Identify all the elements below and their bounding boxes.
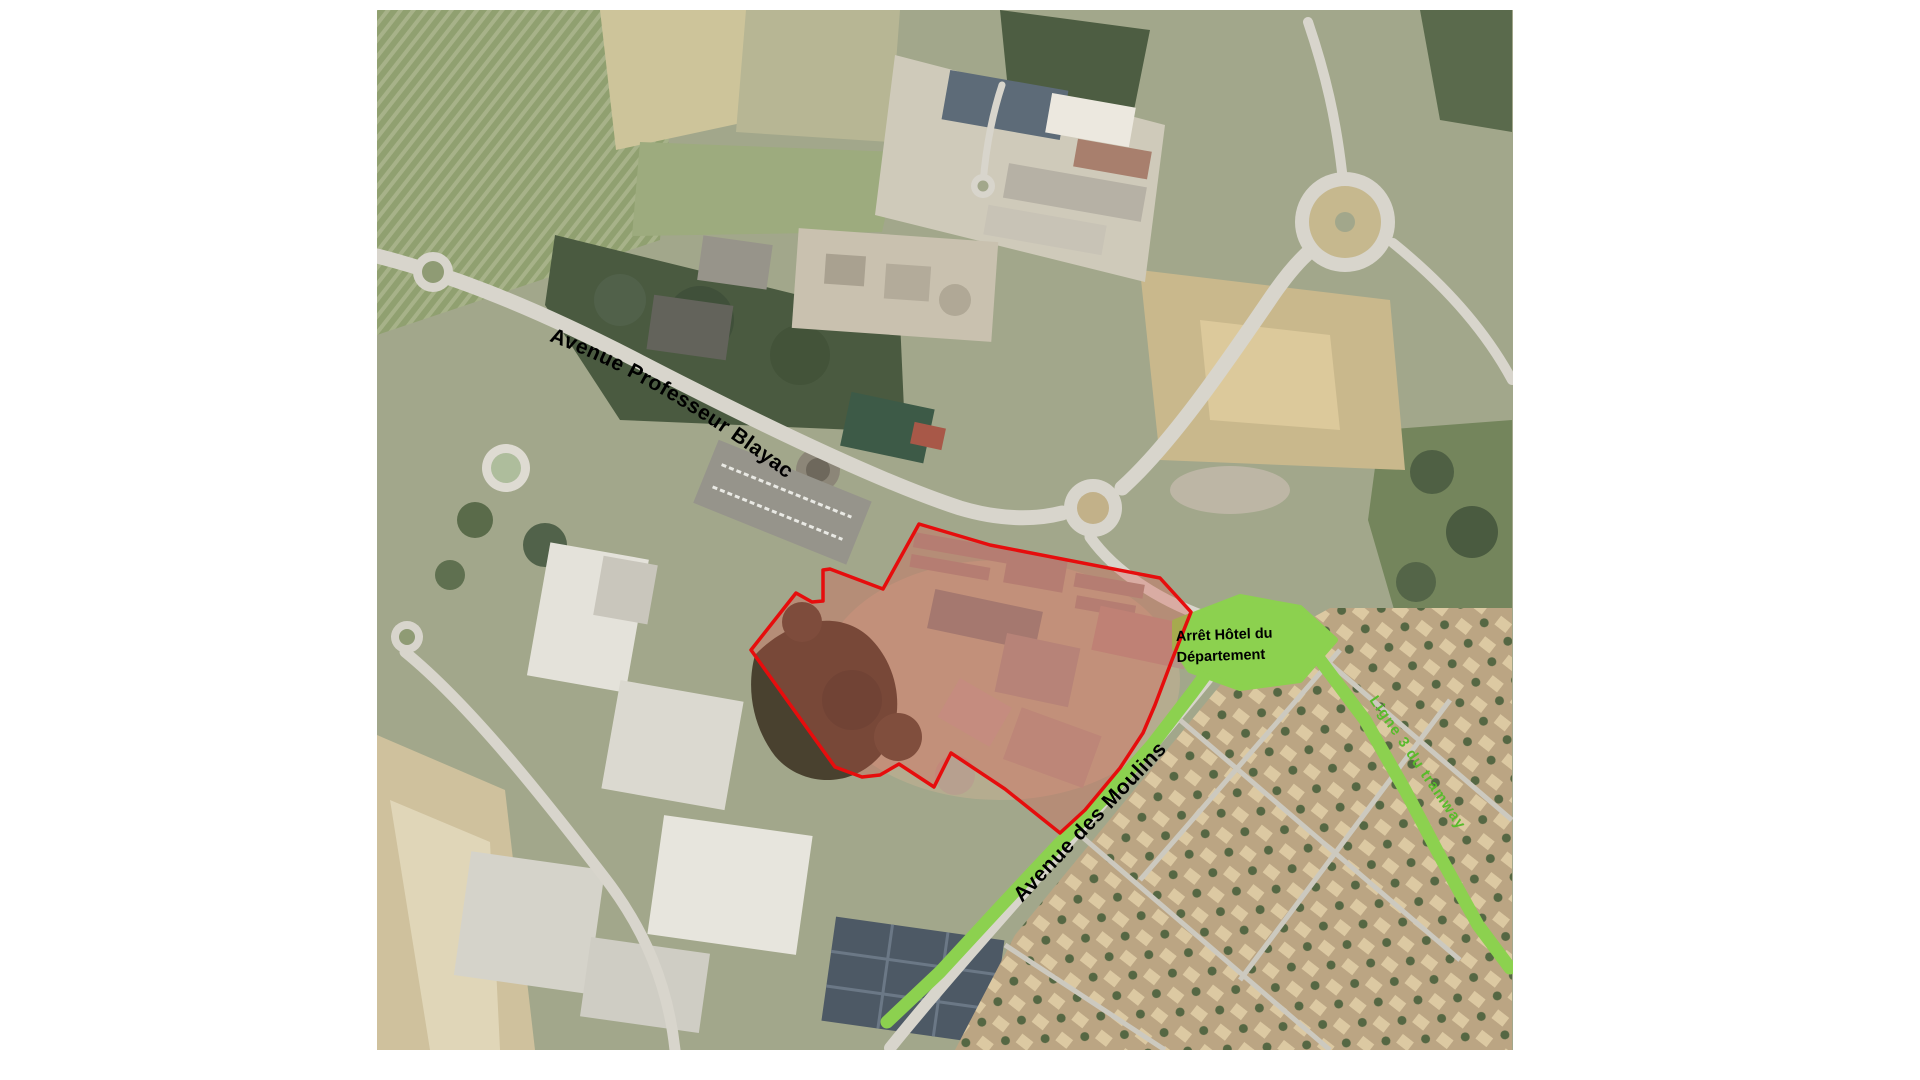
aerial-map-svg: Avenue Professeur Blayac Avenue des Moul… <box>377 10 1513 1050</box>
aerial-map: Avenue Professeur Blayac Avenue des Moul… <box>377 10 1513 1050</box>
tram-stop-label-line1: Arrêt Hôtel du <box>1176 626 1273 645</box>
tram-stop-label-line2: Département <box>1176 647 1265 666</box>
